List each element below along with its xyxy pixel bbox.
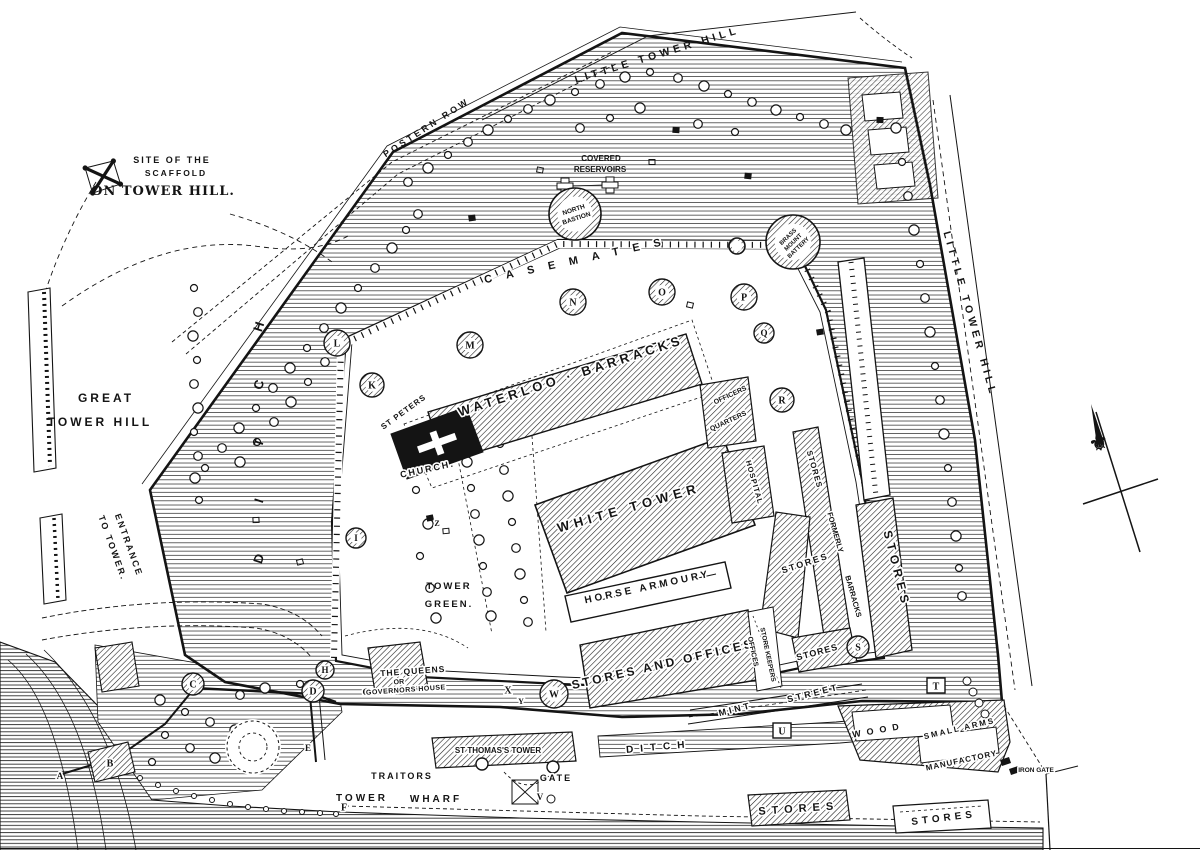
tower-letter-q: Q — [760, 328, 767, 338]
tree-icon — [413, 487, 420, 494]
tree-icon — [387, 243, 397, 253]
tree-icon — [471, 510, 480, 519]
tower-letter-x: X — [504, 686, 512, 697]
tree-icon — [480, 563, 487, 570]
label-or-22: OR — [393, 679, 404, 687]
tower-marker-u: U — [773, 723, 791, 738]
outwork-building-west — [95, 642, 139, 692]
tree-icon — [948, 498, 957, 507]
casemate-turret — [729, 238, 745, 254]
tower-letter-k: K — [368, 381, 376, 392]
tree-icon — [174, 789, 179, 794]
tree-icon — [956, 565, 963, 572]
tower-marker-p: P — [731, 284, 757, 310]
tree-icon — [820, 120, 829, 129]
brass-mount-battery: BRASSMOUNTBATTERY — [766, 215, 820, 269]
tower-letter-z: Z — [434, 519, 439, 528]
label-site-of-the-0: SITE OF THE — [133, 155, 211, 165]
tower-marker-t: T — [927, 678, 945, 693]
small-structure — [745, 173, 751, 179]
tree-icon — [138, 776, 143, 781]
tree-icon — [194, 357, 201, 364]
tower-letter-i: I — [354, 533, 358, 543]
tower-letter-c: C — [189, 680, 196, 691]
tower-marker-m: M — [457, 332, 483, 358]
tree-icon — [355, 285, 362, 292]
tree-icon — [186, 744, 195, 753]
tree-icon — [270, 418, 279, 427]
tree-icon — [210, 798, 215, 803]
tree-icon — [155, 695, 165, 705]
tower-marker-n: N — [560, 289, 586, 315]
tree-icon — [304, 345, 311, 352]
small-structure — [673, 127, 679, 132]
tree-icon — [182, 709, 189, 716]
tree-icon — [474, 535, 484, 545]
tree-icon — [904, 192, 913, 201]
tree-icon — [486, 611, 496, 621]
tower-marker-l: L — [324, 330, 350, 356]
tower-marker-r: R — [770, 388, 794, 412]
tree-icon — [188, 331, 198, 341]
tree-icon — [524, 618, 533, 627]
tower-marker-k: K — [360, 373, 384, 397]
tower-letter-s: S — [855, 643, 861, 654]
tree-icon — [210, 753, 220, 763]
hospital — [722, 446, 774, 523]
queens-stairs-dot — [547, 795, 555, 803]
tree-icon — [635, 103, 645, 113]
tree-icon — [771, 105, 781, 115]
tower-marker-o: O — [649, 279, 675, 305]
tree-icon — [320, 324, 329, 333]
tower-marker-z: Z — [434, 519, 439, 528]
tree-icon — [748, 98, 757, 107]
tree-icon — [699, 81, 709, 91]
tree-icon — [235, 457, 245, 467]
tower-letter-e: E — [305, 743, 311, 753]
tree-icon — [503, 491, 513, 501]
tower-letter-p: P — [741, 293, 747, 304]
tree-icon — [596, 80, 605, 89]
tower-marker-h: H — [316, 661, 334, 679]
tree-icon — [445, 152, 452, 159]
tree-icon — [403, 227, 410, 234]
tower-marker-w: W — [540, 680, 568, 708]
tree-icon — [253, 405, 260, 412]
small-structure — [469, 215, 476, 221]
tree-icon — [620, 72, 630, 82]
tree-icon — [945, 465, 952, 472]
small-structure — [817, 329, 824, 335]
tower-marker-b: B — [107, 759, 114, 770]
label-traitors-46: TRAITORS — [371, 771, 433, 781]
tree-icon — [196, 497, 203, 504]
label-great-9: GREAT — [78, 391, 134, 405]
tower-marker-a: A — [57, 771, 64, 781]
label-green-20: GREEN. — [425, 599, 473, 610]
tree-icon — [305, 379, 312, 386]
tower-letter-a: A — [57, 771, 64, 781]
tower-letter-m: M — [465, 341, 475, 352]
label-scaffold-1: SCAFFOLD — [145, 168, 207, 178]
tower-of-london-plan: ⚜ NORTHBASTIONBRASSMOUNTBATTERY ABCDEFGH… — [0, 0, 1200, 850]
map-canvas: ⚜ NORTHBASTIONBRASSMOUNTBATTERY ABCDEFGH… — [0, 0, 1200, 850]
tree-icon — [509, 519, 516, 526]
officers-quarters — [700, 377, 756, 448]
tree-icon — [206, 718, 215, 727]
tree-icon — [524, 105, 533, 114]
tree-icon — [162, 732, 169, 739]
tower-letter-w: W — [549, 690, 559, 701]
tower-letter-y: Y — [518, 697, 524, 706]
tree-icon — [286, 397, 296, 407]
tree-icon — [925, 327, 935, 337]
tree-icon — [483, 588, 492, 597]
tree-icon — [260, 683, 270, 693]
tree-icon — [545, 95, 555, 105]
tree-icon — [951, 531, 961, 541]
tree-icon — [234, 423, 244, 433]
tree-icon — [899, 159, 906, 166]
tree-icon — [190, 473, 200, 483]
tree-icon — [512, 544, 521, 553]
tree-icon — [192, 794, 197, 799]
label-st-thomas-s-tower-45: ST THOMAS'S TOWER — [455, 746, 541, 755]
label-tower-19: TOWER — [426, 581, 471, 592]
tower-marker-e: E — [305, 743, 311, 753]
tree-icon — [404, 178, 413, 187]
tree-icon — [732, 129, 739, 136]
label-tower-48: TOWER — [336, 793, 388, 804]
tower-letter-t: T — [933, 682, 940, 693]
lion-tower-yard — [225, 719, 281, 775]
tree-icon — [194, 452, 203, 461]
tower-marker-i: I — [346, 528, 366, 548]
tower-marker-f: F — [341, 803, 347, 814]
tower-marker-d: D — [302, 680, 324, 702]
label-covered-5: COVERED — [581, 154, 621, 163]
tree-icon — [336, 303, 346, 313]
tree-icon — [576, 124, 585, 133]
tree-icon — [414, 210, 423, 219]
tree-icon — [194, 308, 203, 317]
tree-icon — [193, 403, 203, 413]
tree-icon — [190, 380, 199, 389]
label-on-tower-hill-2: ON TOWER HILL. — [91, 184, 235, 199]
tower-marker-y: Y — [518, 697, 524, 706]
tree-icon — [932, 363, 939, 370]
tower-letter-b: B — [107, 759, 114, 770]
tree-icon — [334, 812, 339, 817]
tree-icon — [321, 358, 330, 367]
tree-icon — [921, 294, 930, 303]
tree-icon — [909, 225, 919, 235]
north-bastion: NORTHBASTION — [549, 188, 601, 240]
label-gate-47: GATE — [540, 773, 572, 783]
tree-icon — [505, 116, 512, 123]
small-structure — [877, 117, 883, 122]
tree-icon — [318, 811, 323, 816]
tree-icon — [841, 125, 851, 135]
tree-icon — [607, 115, 614, 122]
tree-icon — [797, 114, 804, 121]
tree-icon — [246, 805, 251, 810]
tower-letter-u: U — [778, 727, 785, 738]
tree-icon — [202, 465, 209, 472]
label-wharf-49: WHARF — [410, 794, 462, 805]
tower-letter-v: V — [537, 792, 544, 802]
small-structure — [427, 515, 434, 521]
tree-icon — [483, 125, 493, 135]
tree-icon — [417, 553, 424, 560]
tree-icon — [694, 120, 703, 129]
tower-letter-f: F — [341, 803, 347, 814]
tower-marker-x: X — [504, 686, 512, 697]
tree-icon — [228, 802, 233, 807]
label-tower-hill-10: TOWER HILL — [48, 415, 152, 429]
tree-icon — [891, 123, 901, 133]
tree-icon — [264, 807, 269, 812]
tree-icon — [917, 261, 924, 268]
tree-icon — [468, 485, 475, 492]
tree-icon — [282, 809, 287, 814]
tower-letter-d: D — [309, 687, 316, 698]
tree-icon — [191, 429, 198, 436]
tower-marker-q: Q — [754, 323, 774, 343]
tree-icon — [191, 285, 198, 292]
tree-icon — [515, 569, 525, 579]
tree-icon — [285, 363, 295, 373]
tree-icon — [156, 783, 161, 788]
tree-icon — [647, 69, 654, 76]
tree-icon — [572, 89, 579, 96]
tree-icon — [371, 264, 380, 273]
tree-icon — [521, 597, 528, 604]
tower-letter-o: O — [658, 288, 666, 299]
tree-icon — [423, 163, 433, 173]
tower-marker-s: S — [847, 636, 869, 658]
tower-marker-v: V — [537, 792, 544, 802]
tree-icon — [674, 74, 683, 83]
tree-icon — [958, 592, 967, 601]
tree-icon — [939, 429, 949, 439]
tree-icon — [218, 444, 227, 453]
tree-icon — [936, 396, 945, 405]
tower-letter-h: H — [321, 665, 328, 675]
tower-marker-c: C — [182, 673, 204, 695]
label-reservoirs-6: RESERVOIRS — [574, 165, 627, 174]
tree-icon — [725, 91, 732, 98]
tree-icon — [431, 613, 441, 623]
tree-icon — [149, 759, 156, 766]
tower-letter-n: N — [569, 298, 577, 309]
tree-icon — [500, 466, 509, 475]
tower-letter-r: R — [778, 396, 786, 407]
tree-icon — [464, 138, 473, 147]
tree-icon — [269, 384, 278, 393]
tree-icon — [236, 691, 245, 700]
tree-icon — [300, 810, 305, 815]
label-iron-gate-42: IRON GATE — [1018, 767, 1054, 774]
tower-letter-l: L — [334, 339, 341, 350]
